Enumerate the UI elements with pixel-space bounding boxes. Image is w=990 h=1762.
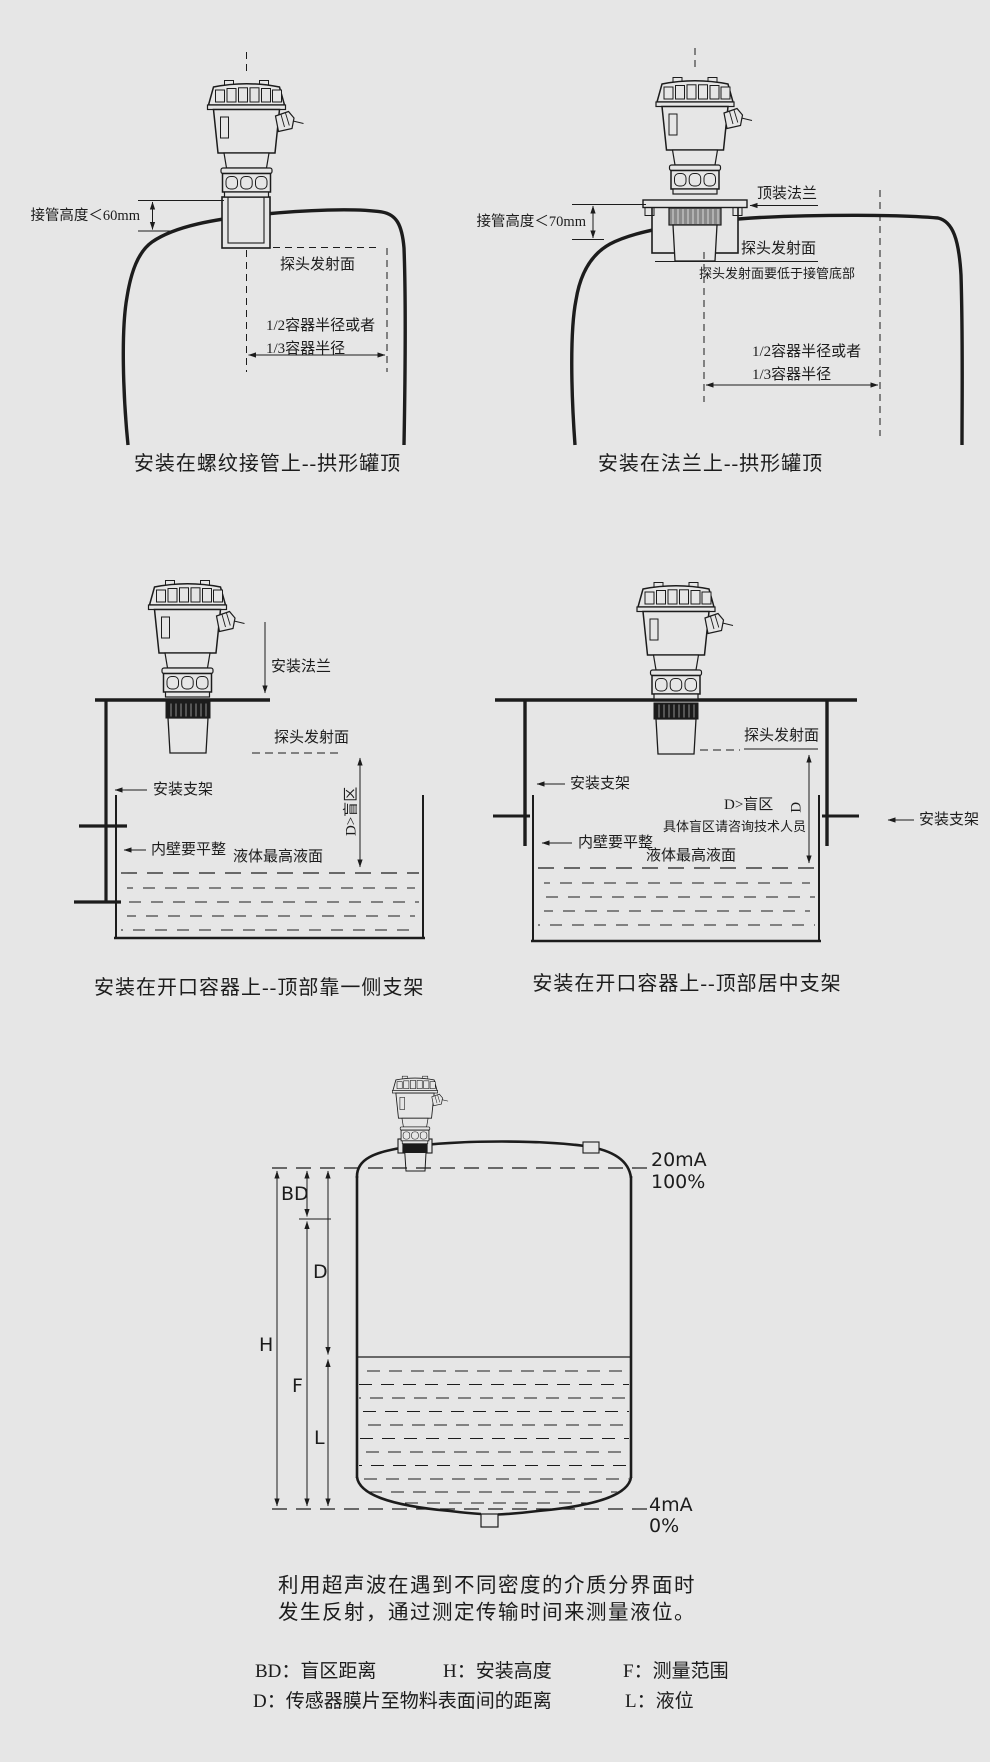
page: 接管高度＜60mm 探头发射面 1/2容器半径或者 1/3容器半径 安装在螺纹接… [0, 0, 990, 1762]
legend-l: L：液位 [625, 1686, 694, 1713]
ultrasonic-sensor-drawing [392, 1076, 448, 1144]
description-line-2: 发生反射，通过测定传输时间来测量液位。 [278, 1595, 696, 1625]
diagram-canvas [0, 0, 990, 1762]
label-nozzle-height: 接管高度＜60mm [8, 207, 140, 225]
ultrasonic-sensor-drawing [149, 581, 245, 698]
probe-horn [673, 225, 717, 261]
label-dim-d: D [788, 796, 807, 818]
label-radius-1: 1/2容器半径或者 [752, 343, 861, 362]
ultrasonic-sensor-drawing [208, 81, 304, 198]
legend-d: D：传感器膜片至物料表面间的距离 [253, 1686, 552, 1713]
label-top-flange: 顶装法兰 [757, 185, 817, 204]
label-probe-face: 探头发射面 [274, 729, 349, 748]
label-mounting-flange: 安装法兰 [271, 658, 331, 677]
thread-ring [166, 702, 210, 718]
label-inner-wall: 内壁要平整 [578, 834, 653, 853]
label-radius-1: 1/2容器半径或者 [266, 317, 375, 336]
top-nozzle [583, 1142, 599, 1153]
label-bracket-right: 安装支架 [919, 811, 979, 830]
label-20mA: 20mA [651, 1149, 707, 1173]
thread-ring [654, 703, 698, 719]
ultrasonic-sensor-drawing [637, 583, 733, 700]
bottom-nozzle [481, 1514, 498, 1527]
label-H: H [259, 1334, 273, 1358]
label-nozzle-height: 接管高度＜70mm [454, 213, 586, 231]
label-F: F [292, 1375, 303, 1399]
ultrasonic-sensor-drawing [656, 78, 752, 195]
label-blind-zone-note: 具体盲区请咨询技术人员 [663, 819, 806, 835]
liquid-fill [350, 1371, 640, 1503]
thread-ring [403, 1144, 427, 1153]
legend-bd: BD：盲区距离 [255, 1656, 376, 1683]
label-max-level: 液体最高液面 [233, 848, 323, 867]
legend-h: H：安装高度 [443, 1656, 552, 1683]
label-max-level: 液体最高液面 [646, 847, 736, 866]
label-probe-face: 探头发射面 [744, 727, 819, 746]
probe-horn [168, 718, 208, 753]
threaded-nozzle [222, 197, 270, 248]
label-blind-zone: D>盲区 [724, 796, 773, 815]
label-BD: BD [281, 1183, 309, 1207]
legend-f: F：测量范围 [623, 1656, 729, 1683]
probe-horn [656, 719, 696, 754]
caption-top-right: 安装在法兰上--拱形罐顶 [558, 447, 863, 476]
caption-middle-right: 安装在开口容器上--顶部居中支架 [532, 967, 842, 996]
label-bracket-left: 安装支架 [570, 775, 630, 794]
label-inner-wall: 内壁要平整 [151, 841, 226, 860]
label-D: D [313, 1261, 328, 1285]
label-bracket: 安装支架 [153, 781, 213, 800]
top-flange-plate [643, 200, 747, 208]
label-probe-face: 探头发射面 [280, 256, 355, 275]
label-blind-zone: D>盲区 [343, 771, 362, 851]
label-radius-2: 1/3容器半径 [266, 340, 345, 359]
label-radius-2: 1/3容器半径 [752, 366, 831, 385]
description-line-1: 利用超声波在遇到不同密度的介质分界面时 [278, 1568, 696, 1598]
label-probe-face: 探头发射面 [741, 240, 816, 259]
caption-top-left: 安装在螺纹接管上--拱形罐顶 [115, 447, 420, 476]
label-probe-face-note: 探头发射面要低于接管底部 [699, 266, 855, 282]
caption-middle-left: 安装在开口容器上--顶部靠一侧支架 [94, 971, 404, 1000]
label-100pct: 100% [651, 1171, 705, 1195]
label-0pct: 0% [649, 1515, 679, 1539]
label-L: L [314, 1427, 325, 1451]
